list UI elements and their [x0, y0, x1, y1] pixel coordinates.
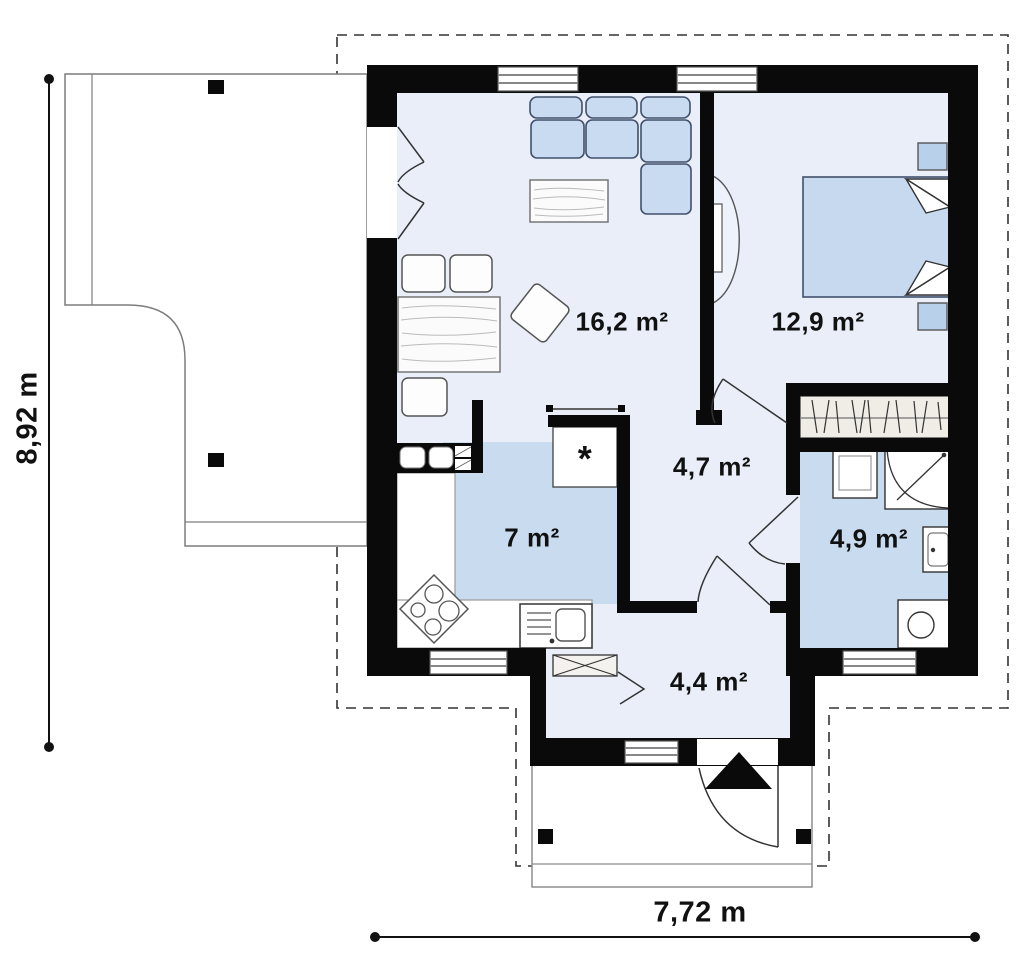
porch-post — [796, 829, 811, 844]
floor-plan-drawing — [0, 0, 1024, 957]
nightstand — [918, 143, 947, 170]
room-label-entry: 4,4 m² — [670, 667, 748, 698]
wall-hall-entry-right — [770, 601, 800, 613]
room-label-kitchen: 7 m² — [504, 523, 559, 554]
wall-right — [948, 93, 978, 650]
dimension-label-vertical: 8,92 m — [12, 371, 45, 464]
wall-kitchen-hall — [617, 415, 630, 613]
chair — [402, 378, 447, 416]
room-label-hallway: 4,7 m² — [673, 452, 751, 483]
sink-bowl — [556, 609, 585, 641]
porch — [532, 766, 812, 887]
canopy-post — [208, 453, 224, 467]
wall-hall-entry-left — [617, 601, 697, 613]
terrace — [65, 74, 367, 546]
wall-living-bedroom — [700, 93, 714, 412]
wall-left-upper — [367, 93, 397, 127]
room-label-living: 16,2 m² — [575, 307, 668, 338]
shower — [885, 447, 950, 509]
window-entry — [625, 741, 678, 763]
canopy-post — [208, 80, 224, 94]
terrace-door-opening — [367, 127, 397, 238]
wall-kitchen-stub — [472, 400, 483, 473]
porch-post — [538, 829, 553, 844]
washbasin — [923, 527, 952, 572]
wardrobe — [800, 396, 952, 438]
room-label-bedroom: 12,9 m² — [771, 307, 864, 338]
vent-shaft — [553, 655, 617, 676]
kitchen-sink-unit — [520, 604, 592, 648]
chair — [402, 255, 445, 292]
wall-wardrobe-top — [786, 383, 952, 396]
floor-plan: 16,2 m² 12,9 m² 4,7 m² 7 m² 4,9 m² 4,4 m… — [0, 0, 1024, 957]
window-living — [498, 67, 578, 91]
window-bathroom — [843, 651, 916, 674]
bed — [803, 177, 952, 297]
tap-dot — [550, 639, 555, 644]
wall-top — [367, 65, 978, 93]
dimension-label-horizontal: 7,72 m — [653, 897, 746, 930]
window-kitchen — [430, 651, 507, 674]
toilet — [833, 450, 877, 498]
wall-wardrobe-bottom — [786, 438, 952, 452]
wall-bath-left — [786, 563, 800, 676]
nightstand — [918, 303, 947, 330]
washing-machine — [898, 600, 950, 648]
wall-left-lower — [367, 238, 397, 650]
chair — [450, 255, 492, 292]
wall-door-jamb — [696, 410, 722, 425]
coffee-table — [530, 180, 608, 222]
room-label-bathroom: 4,9 m² — [830, 524, 908, 555]
window-bedroom — [677, 67, 757, 91]
dining-table — [398, 297, 500, 372]
fridge-marker: * — [578, 438, 593, 480]
